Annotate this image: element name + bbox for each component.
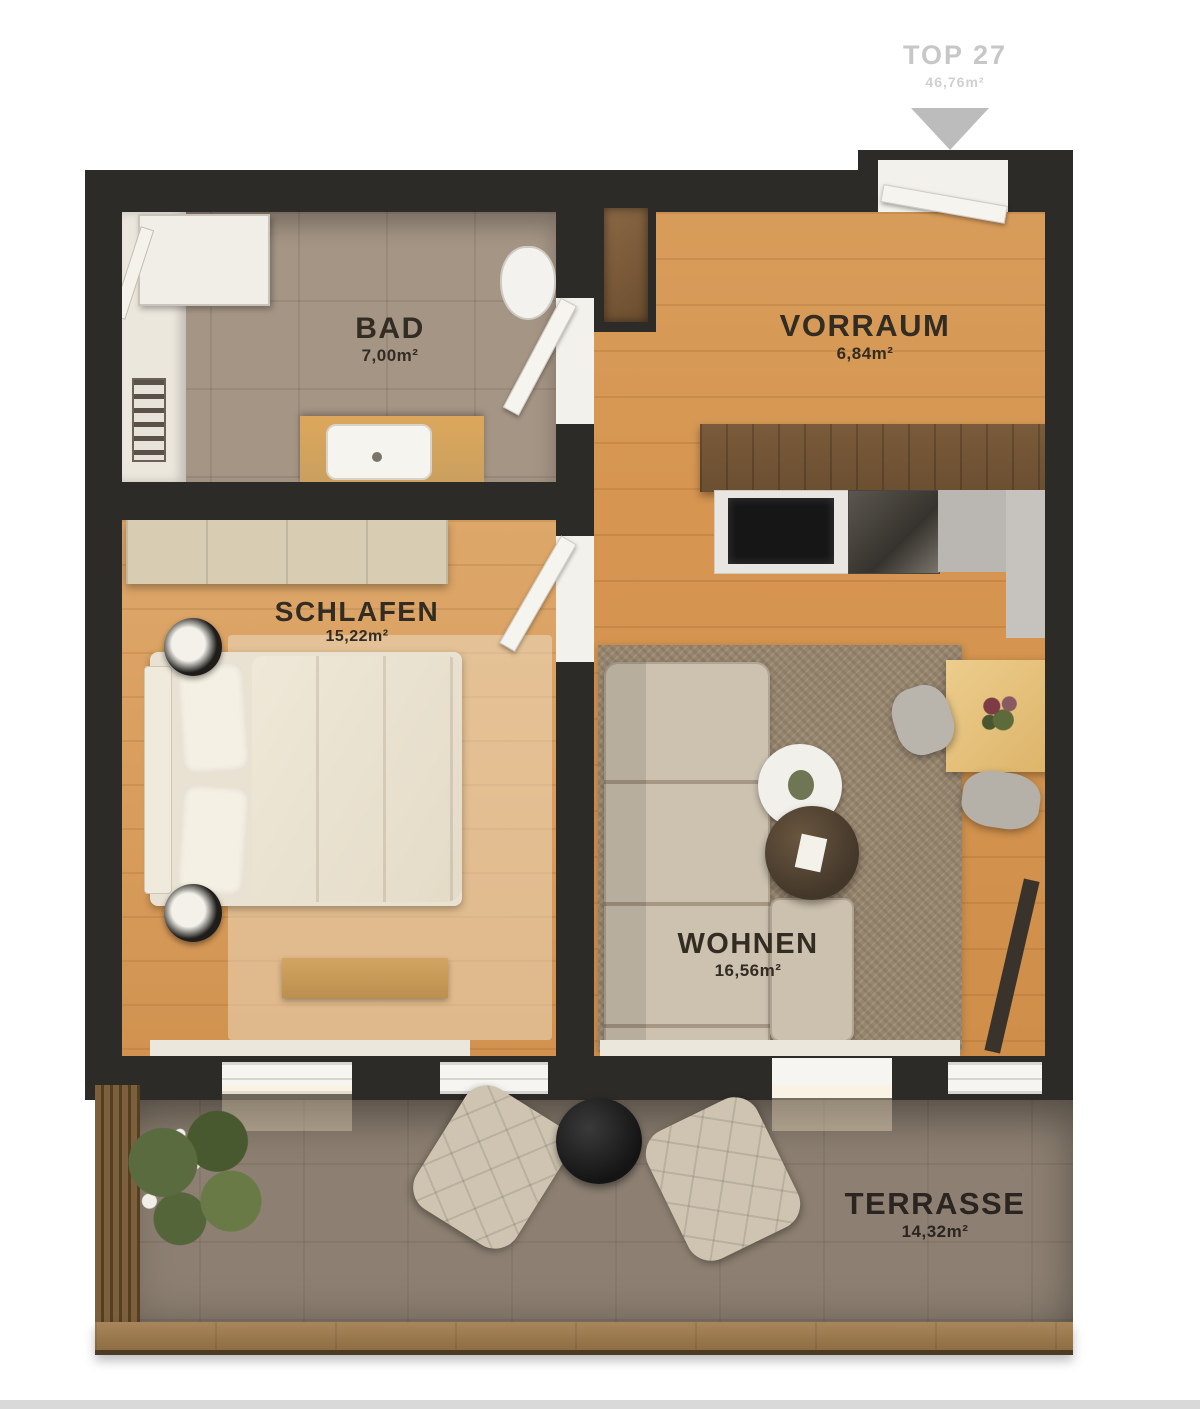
sofa-backrest [604, 662, 646, 1060]
label-schlafen-area: 15,22m² [247, 628, 467, 646]
terrace-plant [112, 1092, 282, 1268]
counter-right-wall [1006, 490, 1045, 638]
label-vorraum-area: 6,84m² [745, 344, 985, 364]
terrace-bench [95, 1322, 1073, 1355]
bedside-lamp-top [164, 618, 222, 676]
living-window-sill [600, 1040, 960, 1056]
page-bottom-divider [0, 1400, 1200, 1409]
label-terrasse-area: 14,32m² [830, 1222, 1040, 1242]
side-table-plant [788, 770, 814, 800]
floor-plan-page: TOP 27 46,76m² [0, 0, 1200, 1409]
dining-flowers [978, 690, 1024, 736]
bed-headboard [144, 666, 172, 894]
entrance-arrow-icon [911, 108, 989, 150]
label-wohnen-name: WOHNEN [648, 928, 848, 961]
label-wohnen-area: 16,56m² [648, 961, 848, 981]
bath-cabinet [138, 214, 270, 306]
label-schlafen: SCHLAFEN 15,22m² [247, 596, 467, 646]
utility-shaft-niche [604, 208, 648, 322]
bed-pillow-2 [176, 784, 249, 896]
cooktop [728, 498, 834, 564]
label-bad-name: BAD [290, 312, 490, 346]
terrace-light-door [772, 1085, 892, 1131]
label-schlafen-name: SCHLAFEN [247, 596, 467, 628]
unit-total-area: 46,76m² [880, 74, 1030, 90]
wall-left [85, 170, 122, 1100]
sink-drain [372, 452, 382, 462]
living-window [948, 1062, 1042, 1094]
terrace-table [556, 1098, 642, 1184]
kitchen-upper-cabinet [700, 424, 1045, 492]
kitchen-sink-unit [848, 490, 940, 574]
label-vorraum-name: VORRAUM [745, 308, 985, 344]
towel-radiator [132, 378, 166, 462]
toilet [500, 246, 556, 320]
bedroom-window-sill [150, 1040, 470, 1056]
bed-duvet [252, 656, 462, 902]
bed-pillow-1 [176, 662, 249, 774]
label-terrasse: TERRASSE 14,32m² [830, 1186, 1040, 1242]
bed-foot-bench [282, 958, 448, 998]
wall-bad-schlafen [85, 482, 594, 520]
label-terrasse-name: TERRASSE [830, 1186, 1040, 1222]
label-bad-area: 7,00m² [290, 346, 490, 366]
wall-right [1045, 170, 1073, 1100]
unit-title: TOP 27 [880, 40, 1030, 71]
bedside-lamp-bottom [164, 884, 222, 942]
label-bad: BAD 7,00m² [290, 312, 490, 366]
wardrobe [126, 520, 448, 584]
label-wohnen: WOHNEN 16,56m² [648, 928, 848, 981]
label-vorraum: VORRAUM 6,84m² [745, 308, 985, 364]
